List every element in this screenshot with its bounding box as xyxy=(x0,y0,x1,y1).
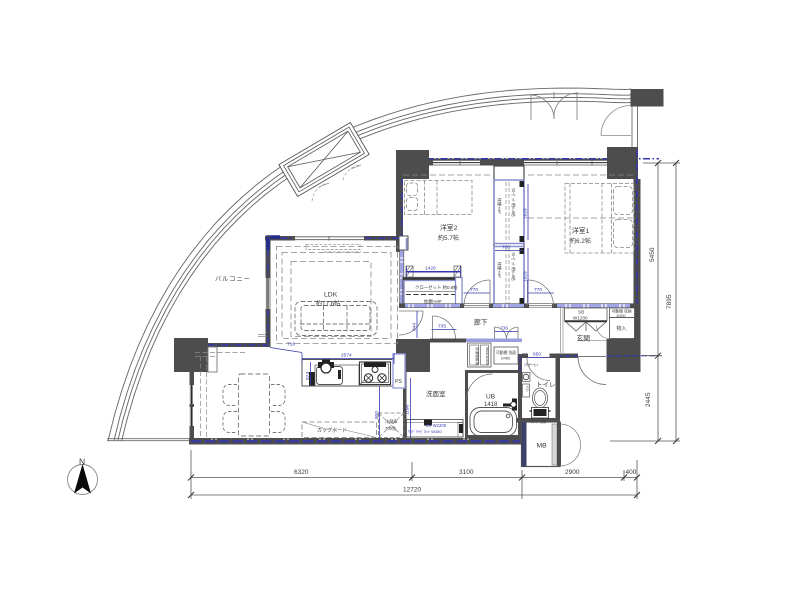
svg-text:ｸﾛｰｾﾞｯﾄ 約0.8帖: ｸﾛｰｾﾞｯﾄ 約0.8帖 xyxy=(511,252,517,281)
svg-text:EV W1200: EV W1200 xyxy=(426,423,447,428)
svg-text:SB: SB xyxy=(578,310,584,315)
svg-text:2900: 2900 xyxy=(565,469,580,476)
svg-text:D450: D450 xyxy=(501,357,510,361)
svg-text:W640xD640: W640xD640 xyxy=(485,347,489,366)
svg-text:ｶｳﾝﾀｰ収納: ｶｳﾝﾀｰ収納 xyxy=(531,419,547,424)
svg-text:冷蔵庫: 冷蔵庫 xyxy=(385,418,398,425)
svg-text:1429: 1429 xyxy=(425,266,436,272)
svg-text:1190: 1190 xyxy=(405,404,411,415)
svg-text:6320: 6320 xyxy=(294,469,309,476)
svg-text:洋室2: 洋室2 xyxy=(440,223,458,232)
svg-text:2574: 2574 xyxy=(341,353,352,359)
svg-text:700角: 700角 xyxy=(385,425,396,432)
svg-text:洗濯機置場: 洗濯機置場 xyxy=(475,347,480,365)
svg-text:約17.6帖: 約17.6帖 xyxy=(316,300,340,308)
svg-text:枕棚+HP: 枕棚+HP xyxy=(497,262,503,278)
svg-text:1029: 1029 xyxy=(523,271,529,282)
svg-text:洗面室: 洗面室 xyxy=(426,389,446,398)
svg-text:カップボード: カップボード xyxy=(317,427,347,434)
svg-text:7895: 7895 xyxy=(666,294,673,309)
svg-text:12720: 12720 xyxy=(403,487,421,494)
svg-text:UB: UB xyxy=(486,394,495,401)
svg-text:770: 770 xyxy=(470,287,478,293)
svg-text:洋室1: 洋室1 xyxy=(572,226,590,235)
svg-text:物入: 物入 xyxy=(617,325,627,332)
svg-text:可動棚 収納: 可動棚 収納 xyxy=(612,309,632,314)
svg-text:トイレ: トイレ xyxy=(536,382,556,389)
svg-text:2445: 2445 xyxy=(645,392,652,407)
svg-text:844: 844 xyxy=(412,323,418,331)
svg-text:3100: 3100 xyxy=(459,469,474,476)
svg-text:770: 770 xyxy=(534,287,542,293)
svg-text:973: 973 xyxy=(305,372,311,380)
svg-text:約5.7帖: 約5.7帖 xyxy=(438,234,459,242)
svg-text:廊下: 廊下 xyxy=(474,318,488,327)
svg-text:可動棚 洗面: 可動棚 洗面 xyxy=(496,350,516,355)
svg-text:枕棚+HP: 枕棚+HP xyxy=(497,198,503,214)
svg-text:ｸﾛｰｾﾞｯﾄ 約0.8帖: ｸﾛｰｾﾞｯﾄ 約0.8帖 xyxy=(511,188,517,217)
svg-text:1418: 1418 xyxy=(484,402,498,408)
svg-text:N: N xyxy=(79,457,85,467)
svg-text:W1200: W1200 xyxy=(573,316,588,321)
svg-text:650: 650 xyxy=(533,352,541,358)
svg-text:MB: MB xyxy=(537,443,548,450)
svg-text:700: 700 xyxy=(502,245,510,251)
svg-text:736: 736 xyxy=(500,326,508,332)
svg-text:ﾘﾓｺﾝ: ﾘﾓｺﾝ xyxy=(525,386,529,393)
svg-text:1629: 1629 xyxy=(523,208,529,219)
svg-text:800: 800 xyxy=(374,411,380,419)
svg-text:ｱｸｾｻﾘｰｾｯﾄ: ｱｸｾｻﾘｰｾｯﾄ xyxy=(524,362,539,367)
svg-text:LDK: LDK xyxy=(324,292,338,299)
svg-text:400: 400 xyxy=(626,469,637,476)
svg-text:ﾜｲﾄﾞｷｬﾋﾞﾈｯﾄ W450: ﾜｲﾄﾞｷｬﾋﾞﾈｯﾄ W450 xyxy=(408,429,442,434)
svg-text:735: 735 xyxy=(438,324,446,330)
svg-text:玄関: 玄関 xyxy=(577,334,591,343)
svg-text:5450: 5450 xyxy=(649,247,656,262)
svg-text:PS: PS xyxy=(395,379,402,385)
svg-text:枕棚+HP: 枕棚+HP xyxy=(424,298,442,305)
svg-text:バルコニー: バルコニー xyxy=(215,276,251,283)
svg-text:クローゼット 約0.8帖: クローゼット 約0.8帖 xyxy=(415,284,458,291)
svg-text:718: 718 xyxy=(287,342,295,348)
svg-text:約6.2帖: 約6.2帖 xyxy=(570,237,591,245)
